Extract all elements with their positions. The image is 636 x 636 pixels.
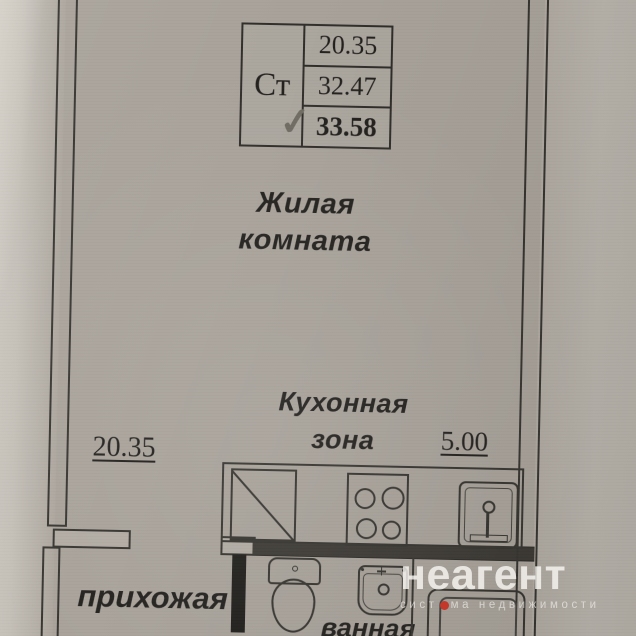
floorplan-photo: Ст 20.35 32.47 33.58 ✓ Жилая комната Кух… [0, 0, 636, 636]
area-table: Ст 20.35 32.47 33.58 [239, 22, 394, 149]
stove-burner [382, 520, 401, 539]
kitchen-zone-label-line1: Кухонная [257, 383, 430, 424]
kitchen-sink [458, 481, 519, 549]
toilet-bowl [271, 578, 316, 633]
bathroom-partition-wall [231, 554, 247, 632]
wall-left-lower [41, 546, 61, 636]
kitchen-sink-tap-base [470, 534, 508, 542]
kitchen-zone-label: Кухонная зона [256, 383, 430, 461]
area-value-row: 32.47 [304, 66, 391, 108]
stove-burner [381, 486, 404, 509]
stove-burner [354, 488, 375, 509]
area-value-row: 20.35 [305, 26, 392, 68]
fridge [230, 468, 297, 541]
checkmark-icon: ✓ [278, 98, 313, 146]
living-room-label-line2: комната [217, 221, 394, 262]
fridge-diagonal-line [232, 470, 296, 541]
living-room-area-dimension: 20.35 [92, 431, 156, 464]
living-room-label-line1: Жилая [217, 184, 394, 225]
living-room-label: Жилая комната [217, 184, 395, 262]
wash-basin-tap [380, 567, 382, 575]
area-values: 20.35 32.47 33.58 [303, 26, 391, 148]
stove-burner [356, 518, 377, 539]
kitchen-zone-label-line2: зона [256, 420, 429, 461]
wash-basin [357, 565, 408, 616]
toilet-tank-button [292, 566, 298, 572]
hallway-label: прихожая [77, 578, 228, 617]
kitchen-area-dimension: 5.00 [440, 426, 488, 458]
wash-basin-mount [361, 568, 364, 571]
area-value-row: 33.58 [303, 107, 390, 147]
bathroom-label: ванная [321, 612, 416, 636]
bathtub-inner [438, 597, 517, 636]
stove [346, 473, 410, 547]
wall-pier-hallway [52, 529, 130, 550]
wash-basin-mount [402, 569, 405, 572]
apartment-floorplan: Ст 20.35 32.47 33.58 ✓ Жилая комната Кух… [0, 0, 636, 636]
